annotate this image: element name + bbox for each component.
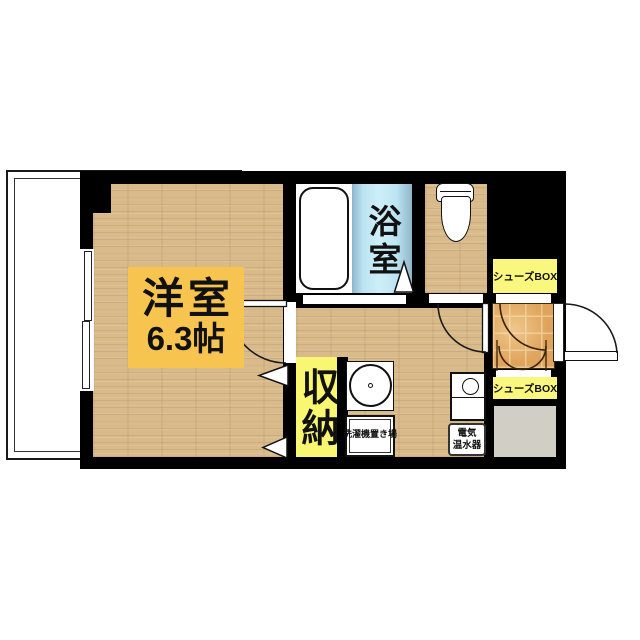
kitchenette-unit [450,372,486,421]
main-room-size: 6.3帖 [147,321,226,357]
kitchen-divider-line [452,397,484,398]
water-heater-line2: 温水器 [453,440,482,452]
electric-water-heater: 電気 温水器 [448,423,486,456]
entrance-upper-threshold [496,294,551,303]
entrance-lower-threshold [496,370,551,377]
laundry-space-label: 洗濯機置き場 [328,427,412,439]
main-room-door-opening [284,302,296,363]
shoes-box-upper-label: シューズBOX [493,269,557,284]
toilet-door-threshold [429,294,483,303]
burner-icon [462,378,479,395]
corner-pillar [80,171,111,213]
shoes-box-lower-label: シューズBOX [493,381,557,396]
closet-label: 収納 [296,359,337,457]
floorplan-canvas: シューズBOX シューズBOX 洋室 6.3帖 浴室 収納 洗濯機置き場 電気 [0,0,640,640]
entrance-tiles [492,303,555,369]
main-room-label-box: 洋室 6.3帖 [128,267,244,368]
window-sash-lower [82,321,90,389]
front-door-leaf [564,351,618,361]
bathroom-label: 浴室 [356,186,408,298]
bathtub [299,187,349,290]
toilet-tank-line [440,191,471,192]
washing-machine-center-dot [368,383,373,388]
water-heater-line1: 電気 [457,428,476,440]
window-sash-upper [84,251,92,321]
storage-gray-area [494,406,556,457]
shoes-box-lower: シューズBOX [493,377,557,399]
shoes-box-upper: シューズBOX [493,259,557,293]
main-room-name: 洋室 [142,277,234,321]
front-door-jamb [553,303,564,362]
